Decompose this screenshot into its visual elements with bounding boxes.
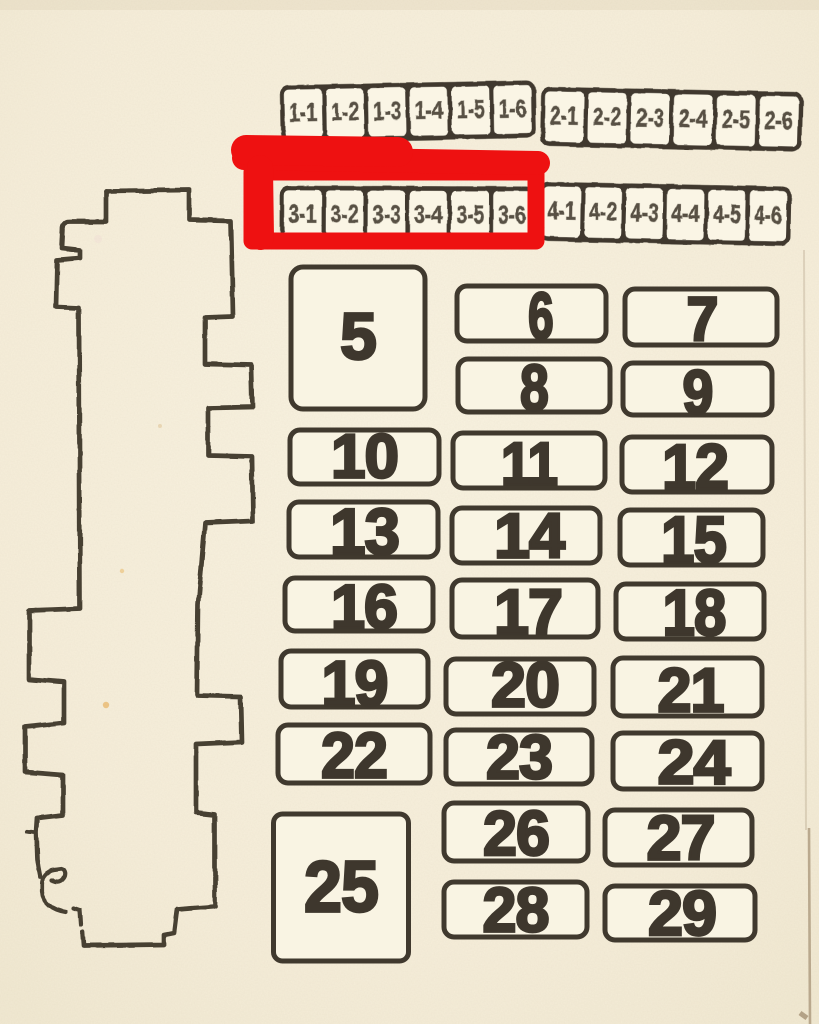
svg-text:10: 10 (331, 423, 398, 492)
svg-text:4-2: 4-2 (589, 198, 618, 227)
svg-text:26: 26 (483, 799, 549, 869)
svg-text:1-2: 1-2 (331, 98, 360, 127)
svg-text:21: 21 (658, 657, 724, 726)
svg-text:19: 19 (322, 647, 388, 719)
svg-text:29: 29 (648, 879, 716, 949)
svg-text:1-1: 1-1 (289, 99, 318, 128)
svg-text:17: 17 (494, 576, 562, 648)
svg-text:22: 22 (321, 719, 387, 791)
svg-text:20: 20 (491, 651, 559, 721)
svg-text:4-3: 4-3 (630, 199, 659, 228)
svg-text:1-6: 1-6 (498, 95, 527, 124)
svg-text:3-1: 3-1 (289, 201, 317, 229)
svg-text:2-5: 2-5 (722, 106, 751, 135)
svg-text:4-5: 4-5 (713, 200, 742, 229)
svg-text:3-6: 3-6 (498, 201, 526, 229)
svg-text:8: 8 (520, 351, 548, 424)
svg-text:23: 23 (486, 724, 552, 793)
svg-text:3-4: 3-4 (414, 201, 442, 229)
svg-text:24: 24 (658, 729, 732, 798)
svg-text:27: 27 (647, 804, 715, 874)
svg-text:4-6: 4-6 (754, 201, 783, 230)
svg-text:1-3: 1-3 (373, 97, 402, 126)
svg-text:13: 13 (330, 495, 399, 568)
svg-text:9: 9 (683, 359, 713, 428)
svg-text:1-5: 1-5 (456, 96, 485, 125)
svg-text:3-2: 3-2 (331, 201, 359, 229)
svg-text:5: 5 (340, 299, 376, 373)
svg-text:3-5: 3-5 (456, 201, 484, 229)
svg-text:6: 6 (528, 279, 553, 353)
svg-text:4-1: 4-1 (548, 197, 577, 226)
svg-text:2-1: 2-1 (550, 102, 579, 131)
svg-text:2-2: 2-2 (593, 103, 622, 132)
svg-text:28: 28 (483, 876, 549, 946)
svg-text:11: 11 (501, 430, 557, 497)
svg-text:18: 18 (663, 576, 726, 649)
svg-text:25: 25 (304, 848, 378, 928)
svg-text:3-3: 3-3 (372, 201, 400, 229)
svg-text:15: 15 (661, 503, 726, 577)
svg-text:2-6: 2-6 (764, 107, 793, 136)
svg-text:2-3: 2-3 (636, 104, 665, 133)
svg-text:12: 12 (662, 431, 728, 503)
svg-text:7: 7 (687, 286, 718, 355)
svg-text:14: 14 (494, 502, 565, 572)
svg-text:4-4: 4-4 (671, 200, 700, 229)
svg-text:1-4: 1-4 (415, 96, 444, 125)
svg-text:16: 16 (331, 573, 397, 642)
svg-text:2-4: 2-4 (679, 105, 708, 134)
